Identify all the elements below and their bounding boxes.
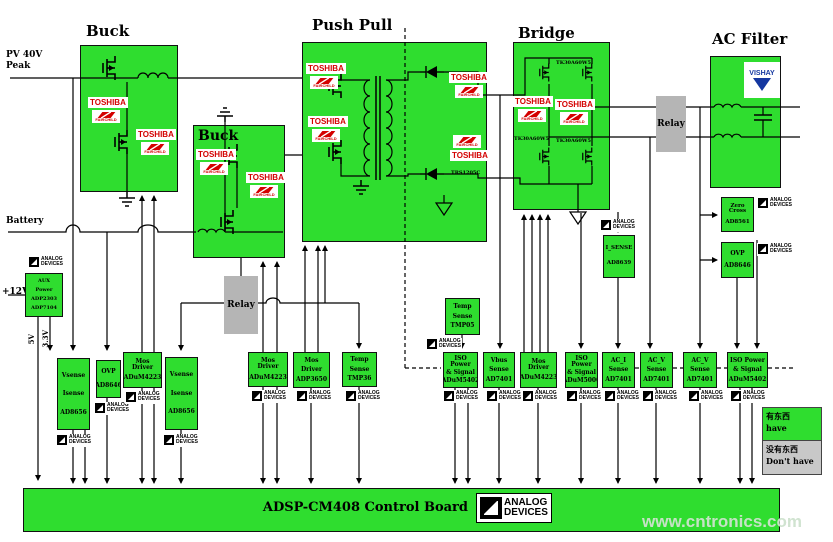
box-line: Sense (489, 367, 509, 373)
box-line: Temp (350, 357, 368, 363)
box-line: Mos (304, 358, 318, 364)
mos-driver-box-3: MosDriverADP3650 (293, 352, 330, 388)
adi-text: DEVICES (701, 396, 723, 401)
box-line: ADuM4223 (520, 375, 557, 381)
box-line: AD8646 (96, 383, 121, 389)
fairchild-text: FAIRCHILD (144, 150, 165, 154)
box-line: ISO Power (567, 356, 596, 368)
bridge-fet-label: TK30A60W5 (556, 138, 591, 144)
box-line: ADuM4223 (124, 375, 162, 381)
mos-driver-box-4: Mos DriverADuM4223 (520, 352, 557, 388)
box-line: Mos Driver (522, 359, 555, 371)
box-line: Zero Cross (723, 204, 752, 215)
box-line: AD7401 (643, 377, 670, 383)
box-line: Temp (453, 304, 471, 310)
box-line: ADuM5000 (565, 378, 598, 384)
ovp-box-2: OVPAD8646 (721, 242, 754, 278)
adi-triangle-icon (252, 391, 262, 401)
box-line: & Signal (733, 367, 762, 373)
box-line: Sense (690, 367, 710, 373)
vishay-text: VISHAY (749, 70, 774, 77)
adi-logo: ANALOGDEVICES (757, 243, 793, 256)
toshiba-logo: TOSHIBA (513, 96, 553, 107)
box-line: OVP (730, 251, 744, 257)
box-line: Vsense (170, 372, 193, 378)
box-line: Sense (647, 367, 667, 373)
legend-have-en: have (766, 422, 818, 434)
ac-v-sense-box-1: AC_VSenseAD7401 (640, 352, 673, 388)
toshiba-logo: TOSHIBA (136, 129, 176, 140)
adi-triangle-icon (427, 339, 437, 349)
adi-logo: ANALOGDEVICES (486, 390, 522, 403)
adi-logo: ANALOGDEVICES (426, 338, 462, 351)
box-line: TMP36 (348, 376, 372, 382)
adi-logo: ANALOGDEVICES (28, 256, 64, 269)
i-sense-box: I_SENSEAD8639 (603, 235, 635, 278)
adi-logo: ANALOGDEVICES (642, 390, 678, 403)
adi-text: DEVICES (176, 440, 198, 445)
box-line: ADuM5402 (729, 377, 767, 383)
box-line: ISO Power (730, 358, 765, 364)
adi-logo-board: ANALOGDEVICES (476, 493, 552, 523)
box-line: Isense (63, 391, 85, 397)
fairchild-text: FAIRCHILD (456, 143, 477, 147)
vishay-logo: VISHAY (744, 62, 780, 98)
adi-text: DEVICES (309, 396, 331, 401)
bridge-fet-label: TK30A60W5 (514, 136, 549, 142)
vsense-isense-box-2: VsenseIsenseAD8656 (165, 357, 198, 430)
adi-text: DEVICES (107, 408, 129, 413)
adi-triangle-icon (523, 391, 533, 401)
fairchild-text: FAIRCHILD (95, 118, 116, 122)
ac-v-sense-box-2: AC_VSenseAD7401 (683, 352, 717, 388)
fairchild-text: FAIRCHILD (315, 137, 336, 141)
aux-line: AUX (38, 279, 50, 284)
fairchild-logo: FAIRCHILD (312, 129, 340, 142)
battery-label: Battery (6, 216, 43, 226)
fairchild-logo: FAIRCHILD (200, 162, 228, 175)
box-line: TMP05 (451, 323, 475, 329)
relay2-box: Relay (224, 276, 258, 334)
box-line: Sense (350, 367, 370, 373)
mos-driver-box-1: Mos DriverADuM4223 (123, 352, 162, 388)
adi-triangle-icon (601, 220, 611, 230)
adi-text: DEVICES (579, 396, 601, 401)
box-line: Vbus (491, 358, 508, 364)
relay1-box: Relay (656, 96, 686, 152)
adi-triangle-icon (758, 198, 768, 208)
adi-text: DEVICES (655, 396, 677, 401)
adi-text: DEVICES (41, 262, 63, 267)
fairchild-text: FAIRCHILD (521, 117, 542, 121)
vsense-isense-box-1: VsenseIsenseAD8656 (57, 358, 90, 430)
box-line: ISO Power (445, 356, 476, 368)
ac-i-sense-box: AC_ISenseAD7401 (602, 352, 635, 388)
toshiba-logo: TOSHIBA (450, 150, 490, 161)
fairchild-logo: FAIRCHILD (310, 76, 338, 89)
bridge-fet-label: TK30A60W5 (556, 60, 591, 66)
fairchild-text: FAIRCHILD (313, 84, 334, 88)
zero-cross-box: Zero CrossAD8561 (721, 197, 754, 232)
adi-logo: ANALOGDEVICES (604, 390, 640, 403)
relay1-label: Relay (657, 119, 685, 129)
box-line: AD8656 (60, 410, 87, 416)
adi-logo: ANALOGDEVICES (163, 434, 199, 447)
fairchild-logo: FAIRCHILD (453, 135, 481, 148)
adi-logo: ANALOGDEVICES (345, 390, 381, 403)
adi-triangle-icon (480, 497, 502, 519)
adi-text: DEVICES (535, 396, 557, 401)
adi-triangle-icon (487, 391, 497, 401)
box-line: AD8561 (725, 220, 749, 226)
ovp-box-1: OVPAD8646 (96, 360, 121, 398)
adi-triangle-icon (57, 435, 67, 445)
buck2-title: Buck (198, 128, 238, 144)
adi-triangle-icon (126, 392, 136, 402)
fairchild-text: FAIRCHILD (458, 93, 479, 97)
toshiba-logo: TOSHIBA (196, 149, 236, 160)
adi-logo: ANALOGDEVICES (443, 390, 479, 403)
adi-triangle-icon (731, 391, 741, 401)
adi-text: DEVICES (770, 203, 792, 208)
legend-none-en: Don't have (766, 455, 818, 467)
aux-line: ADP2303 (31, 297, 57, 302)
iso-power-signal-box-1: ISO Power& SignalADuM5402 (443, 352, 478, 388)
adi-triangle-icon (758, 244, 768, 254)
fairchild-logo: FAIRCHILD (518, 109, 546, 122)
adi-triangle-icon (643, 391, 653, 401)
fairchild-logo: FAIRCHILD (250, 185, 278, 198)
box-line: AD8646 (724, 263, 751, 269)
fairchild-text: FAIRCHILD (563, 120, 584, 124)
aux-power-box: AUX Power ADP2303 ADP7104 (25, 273, 63, 317)
box-line: & Signal (446, 370, 475, 376)
legend-none-cn: 没有东西 (766, 443, 818, 455)
fairchild-logo: FAIRCHILD (455, 85, 483, 98)
box-line: AD8639 (607, 261, 631, 267)
aux-line: ADP7104 (31, 306, 57, 311)
fairchild-logo: FAIRCHILD (92, 110, 120, 123)
buck1-title: Buck (86, 22, 129, 40)
fairchild-text: FAIRCHILD (253, 193, 274, 197)
adi-triangle-icon (605, 391, 615, 401)
adi-triangle-icon (567, 391, 577, 401)
temp-sense-tmp05-box: TempSenseTMP05 (445, 298, 480, 335)
mos-driver-box-2: Mos DriverADuM4223 (248, 352, 288, 387)
box-line: AD7401 (605, 377, 632, 383)
adi-triangle-icon (444, 391, 454, 401)
box-line: AD7401 (687, 377, 714, 383)
adi-text: DEVICES (613, 225, 635, 230)
pushpull-diode-label: TRS1205C (451, 170, 480, 176)
box-line: Isense (171, 391, 193, 397)
adi-triangle-icon (29, 257, 39, 267)
fairchild-text: FAIRCHILD (203, 170, 224, 174)
adi-text: DEVICES (770, 249, 792, 254)
adi-logo: ANALOGDEVICES (94, 402, 130, 415)
pushpull-title: Push Pull (312, 16, 392, 34)
toshiba-logo: TOSHIBA (449, 72, 489, 83)
box-line: I_SENSE (606, 246, 633, 252)
toshiba-logo: TOSHIBA (306, 63, 346, 74)
adi-text: DEVICES (69, 440, 91, 445)
temp-sense-tmp36-box: TempSenseTMP36 (342, 352, 377, 387)
fairchild-logo: FAIRCHILD (141, 142, 169, 155)
box-line: ADuM5402 (443, 378, 478, 384)
adi-logo: ANALOGDEVICES (566, 390, 602, 403)
fairchild-logo: FAIRCHILD (560, 112, 588, 125)
rail-3v3-label: 3.3V (41, 330, 50, 348)
box-line: AC_V (648, 358, 665, 364)
adi-logo: ANALOGDEVICES (296, 390, 332, 403)
bridge-title: Bridge (518, 24, 575, 42)
adi-text: DEVICES (138, 397, 160, 402)
box-line: Mos Driver (250, 358, 286, 370)
bridge-block (513, 42, 610, 210)
legend-have-cn: 有东西 (766, 410, 818, 422)
legend-none: 没有东西 Don't have (762, 441, 822, 475)
inverter-block-diagram: Relay Relay (0, 0, 833, 542)
toshiba-logo: TOSHIBA (246, 172, 286, 183)
adi-text: DEVICES (358, 396, 380, 401)
iso-power-signal-box-3: ISO Power& SignalADuM5402 (727, 352, 768, 388)
adi-text: DEVICES (617, 396, 639, 401)
adi-triangle-icon (297, 391, 307, 401)
adi-triangle-icon (689, 391, 699, 401)
aux-line: Power (35, 288, 52, 293)
box-line: ADuM4223 (249, 375, 287, 381)
adi-logo: ANALOGDEVICES (56, 434, 92, 447)
toshiba-logo: TOSHIBA (555, 99, 595, 110)
vbus-sense-box: VbusSenseAD7401 (483, 352, 515, 388)
box-line: AC_I (611, 358, 626, 364)
box-line: ADP3650 (296, 377, 327, 383)
adi-logo: ANALOGDEVICES (688, 390, 724, 403)
box-line: Vsense (62, 373, 85, 379)
pv-label-line2: Peak (6, 61, 30, 71)
watermark: www.cntronics.com (642, 512, 802, 532)
legend-have: 有东西 have (762, 407, 822, 441)
box-line: & Signal (567, 370, 596, 376)
relay2-label: Relay (227, 300, 255, 310)
box-line: Mos Driver (125, 359, 160, 371)
adi-logo: ANALOGDEVICES (600, 219, 636, 232)
adi-text: DEVICES (456, 396, 478, 401)
adi-text: DEVICES (499, 396, 521, 401)
adi-logo: ANALOGDEVICES (730, 390, 766, 403)
adi-triangle-icon (164, 435, 174, 445)
adi-logo: ANALOGDEVICES (757, 197, 793, 210)
vishay-triangle-icon (753, 78, 771, 91)
board-title: ADSP-CM408 Control Board (250, 500, 468, 515)
adi-triangle-icon (95, 403, 105, 413)
toshiba-logo: TOSHIBA (308, 116, 348, 127)
iso-power-signal-box-2: ISO Power& SignalADuM5000 (565, 352, 598, 388)
adi-logo: ANALOGDEVICES (522, 390, 558, 403)
adi-triangle-icon (346, 391, 356, 401)
pv-label-line1: PV 40V (6, 50, 42, 60)
box-line: AC_V (691, 358, 708, 364)
box-line: AD7401 (486, 377, 513, 383)
adi-text: DEVICES (743, 396, 765, 401)
adi-text: DEVICES (439, 344, 461, 349)
toshiba-logo: TOSHIBA (88, 97, 128, 108)
box-line: Driver (301, 367, 322, 373)
adi-text: DEVICES (264, 396, 286, 401)
rail-5v-label: 5V (27, 334, 36, 344)
box-line: Sense (609, 367, 629, 373)
adi-text: DEVICES (504, 508, 548, 519)
adi-logo: ANALOGDEVICES (251, 390, 287, 403)
box-line: AD8656 (168, 409, 195, 415)
box-line: Sense (453, 314, 473, 320)
acfilter-title: AC Filter (712, 30, 787, 48)
box-line: OVP (101, 369, 115, 375)
adi-logo: ANALOGDEVICES (125, 391, 161, 404)
